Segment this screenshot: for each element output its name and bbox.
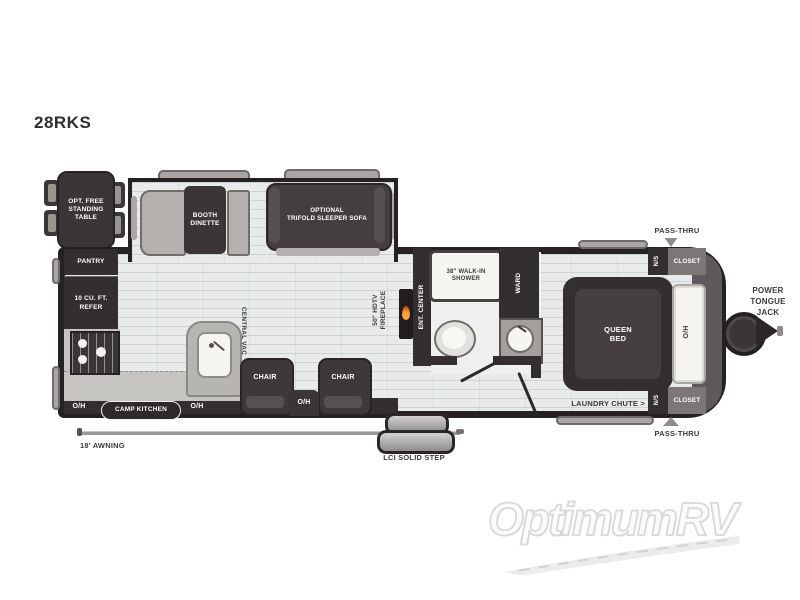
toilet-bowl: [442, 327, 466, 349]
sofa-label: OPTIONAL TRIFOLD SLEEPER SOFA: [287, 207, 367, 223]
chair-label: CHAIR: [331, 374, 354, 383]
pantry-label: PANTRY: [77, 258, 104, 266]
central-vac-label: CENTRAL VAC: [238, 299, 248, 363]
kitchen-sink-cabinet: [186, 321, 242, 397]
sleeper-sofa: OPTIONAL TRIFOLD SLEEPER SOFA: [266, 183, 392, 251]
queen-bed-mattress: QUEEN BED: [575, 289, 661, 379]
toilet: [434, 320, 476, 358]
grab-handle: [578, 240, 648, 249]
fireplace-label: 50" HDTV FIREPLACE: [370, 268, 390, 352]
pantry: PANTRY: [64, 249, 118, 275]
page-title: 28RKS: [34, 112, 91, 133]
overhead-cabinet-mid: O/H: [180, 400, 214, 414]
dinette-label: BOOTH DINETTE: [190, 212, 219, 228]
free-standing-table-group: OPT. FREE STANDING TABLE: [40, 166, 130, 250]
chair-cushion: [48, 184, 56, 202]
bed-label: QUEEN BED: [604, 325, 632, 344]
pass-thru-bottom-label: PASS-THRU: [648, 429, 706, 438]
refrigerator-label: 10 CU. FT. REFER: [74, 295, 107, 311]
overhead-cabinet-left: O/H: [62, 400, 96, 414]
arrow-down-icon: [663, 238, 679, 247]
faucet-icon: [209, 343, 214, 348]
wall-stub: [531, 356, 541, 378]
kitchen-sink: [197, 332, 232, 378]
chair-cushion: [48, 214, 56, 232]
grab-handle: [52, 258, 60, 284]
step-label: LCI SOLID STEP: [353, 453, 475, 462]
recliner-chair: CHAIR: [240, 358, 294, 416]
ent-center-label: ENT. CENTER: [416, 252, 428, 362]
shower-label: 38" WALK-IN SHOWER: [446, 269, 485, 284]
free-standing-table: OPT. FREE STANDING TABLE: [57, 171, 115, 249]
wall-stub: [431, 356, 457, 365]
nightstand-label: N/S: [653, 388, 663, 412]
queen-bed: QUEEN BED: [563, 277, 673, 391]
camp-kitchen-label: CAMP KITCHEN: [115, 406, 167, 414]
nightstand-label: N/S: [653, 249, 663, 273]
sofa-armrest: [269, 187, 280, 243]
fireplace: [399, 289, 413, 339]
entry-step: [377, 430, 455, 454]
bed-overhead-label: O/H: [681, 302, 693, 362]
burner-icon: [78, 339, 87, 348]
overhead-label: O/H: [72, 403, 85, 412]
wardrobe-label: WARD: [513, 253, 525, 313]
power-tongue-jack-label: POWER TONGUE JACK: [738, 286, 798, 318]
watermark-road: [499, 534, 744, 576]
overhead-label: O/H: [297, 399, 310, 408]
flame-icon: [402, 306, 410, 320]
slideout-rail: [131, 196, 137, 240]
free-standing-table-label: OPT. FREE STANDING TABLE: [68, 198, 103, 222]
walk-in-shower: 38" WALK-IN SHOWER: [429, 250, 503, 302]
sofa-armrest: [374, 187, 385, 243]
overhead-label: O/H: [190, 403, 203, 412]
closet: CLOSET: [668, 387, 706, 414]
awning-label: 18' AWNING: [80, 441, 150, 450]
grab-handle: [556, 416, 654, 425]
awning-end: [77, 428, 82, 436]
pass-thru-top-label: PASS-THRU: [648, 226, 706, 235]
recliner-chair: CHAIR: [318, 358, 372, 416]
refrigerator: 10 CU. FT. REFER: [64, 276, 118, 330]
chair-label: CHAIR: [253, 374, 276, 383]
arrow-up-icon: [663, 417, 679, 426]
closet: CLOSET: [668, 248, 706, 275]
overhead-console: O/H: [289, 390, 319, 416]
jack-tip: [777, 326, 783, 336]
floorplan-canvas: 28RKS OPT. FREE STANDING TABLE BOOTH DIN…: [0, 0, 800, 600]
chair-seat: [324, 396, 362, 408]
burner-icon: [96, 347, 106, 357]
jack-cone: [756, 316, 778, 346]
dinette-table: BOOTH DINETTE: [184, 186, 226, 254]
laundry-chute-label: LAUNDRY CHUTE >: [545, 399, 645, 408]
dinette-bench: [140, 190, 186, 256]
awning-end: [456, 429, 464, 434]
cooktop-stove: [70, 331, 120, 375]
dinette-bench: [227, 190, 250, 256]
camp-kitchen-badge: CAMP KITCHEN: [101, 401, 181, 420]
burner-icon: [78, 355, 87, 364]
chair-seat: [246, 396, 284, 408]
grab-handle: [52, 366, 60, 410]
sofa-base: [276, 248, 380, 256]
